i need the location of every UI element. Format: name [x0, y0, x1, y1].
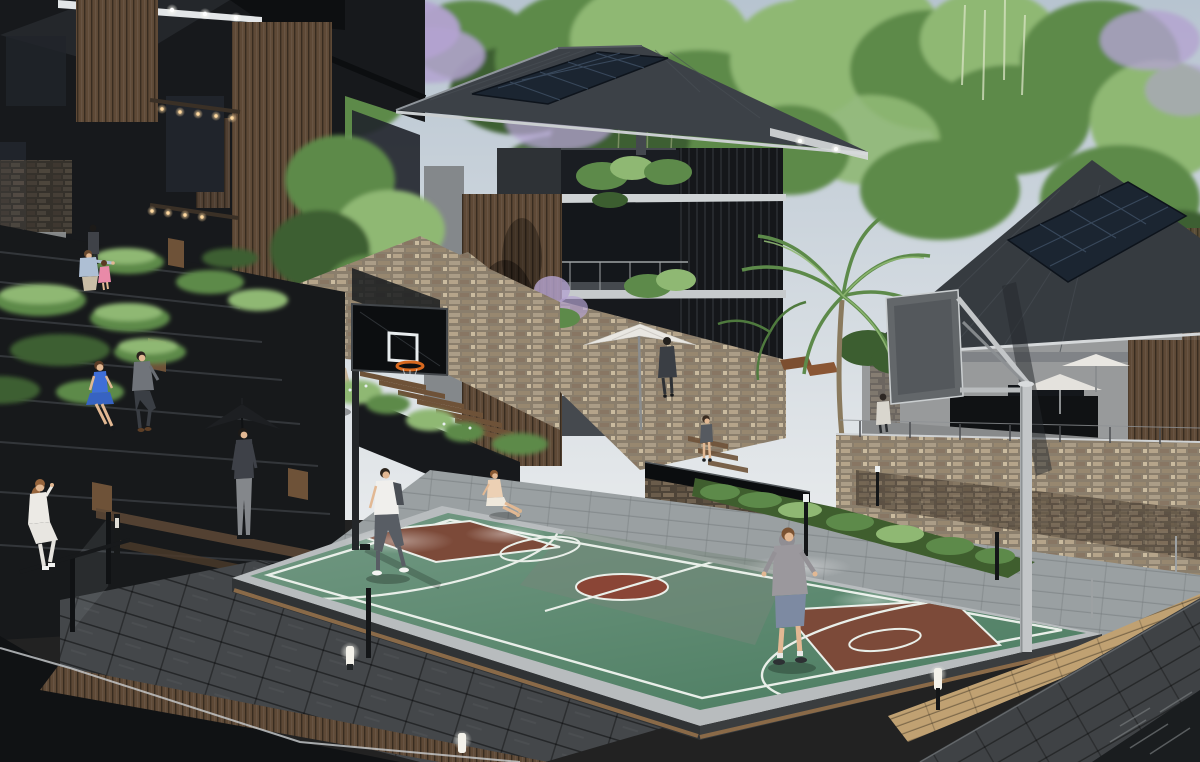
- fence-post: [995, 532, 999, 580]
- fence-post: [366, 588, 371, 658]
- balcony-void: [561, 200, 679, 282]
- architectural-render-scene: [0, 0, 1200, 762]
- balcony-slab: [556, 290, 786, 299]
- fence-post: [804, 494, 808, 556]
- center-circle: [576, 574, 668, 600]
- window: [6, 36, 66, 106]
- stone-texture: [0, 160, 72, 234]
- bollard-light: [934, 668, 942, 690]
- timber-slat-band: [76, 0, 158, 122]
- bollard-light: [458, 733, 466, 753]
- bollard-light: [346, 646, 354, 666]
- render-canvas: [0, 0, 1200, 762]
